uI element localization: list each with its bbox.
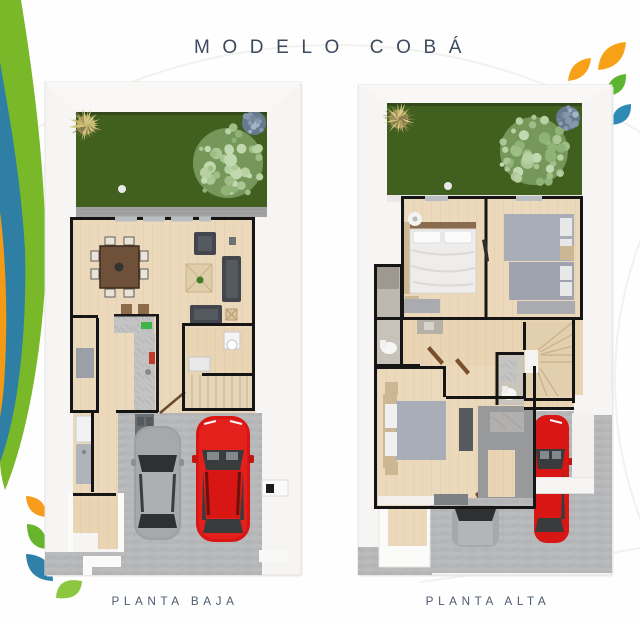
svg-text:PLANTA ALTA: PLANTA ALTA [426,595,551,608]
svg-text:MODELO COBÁ: MODELO COBÁ [194,37,474,58]
svg-text:PLANTA BAJA: PLANTA BAJA [111,595,238,608]
